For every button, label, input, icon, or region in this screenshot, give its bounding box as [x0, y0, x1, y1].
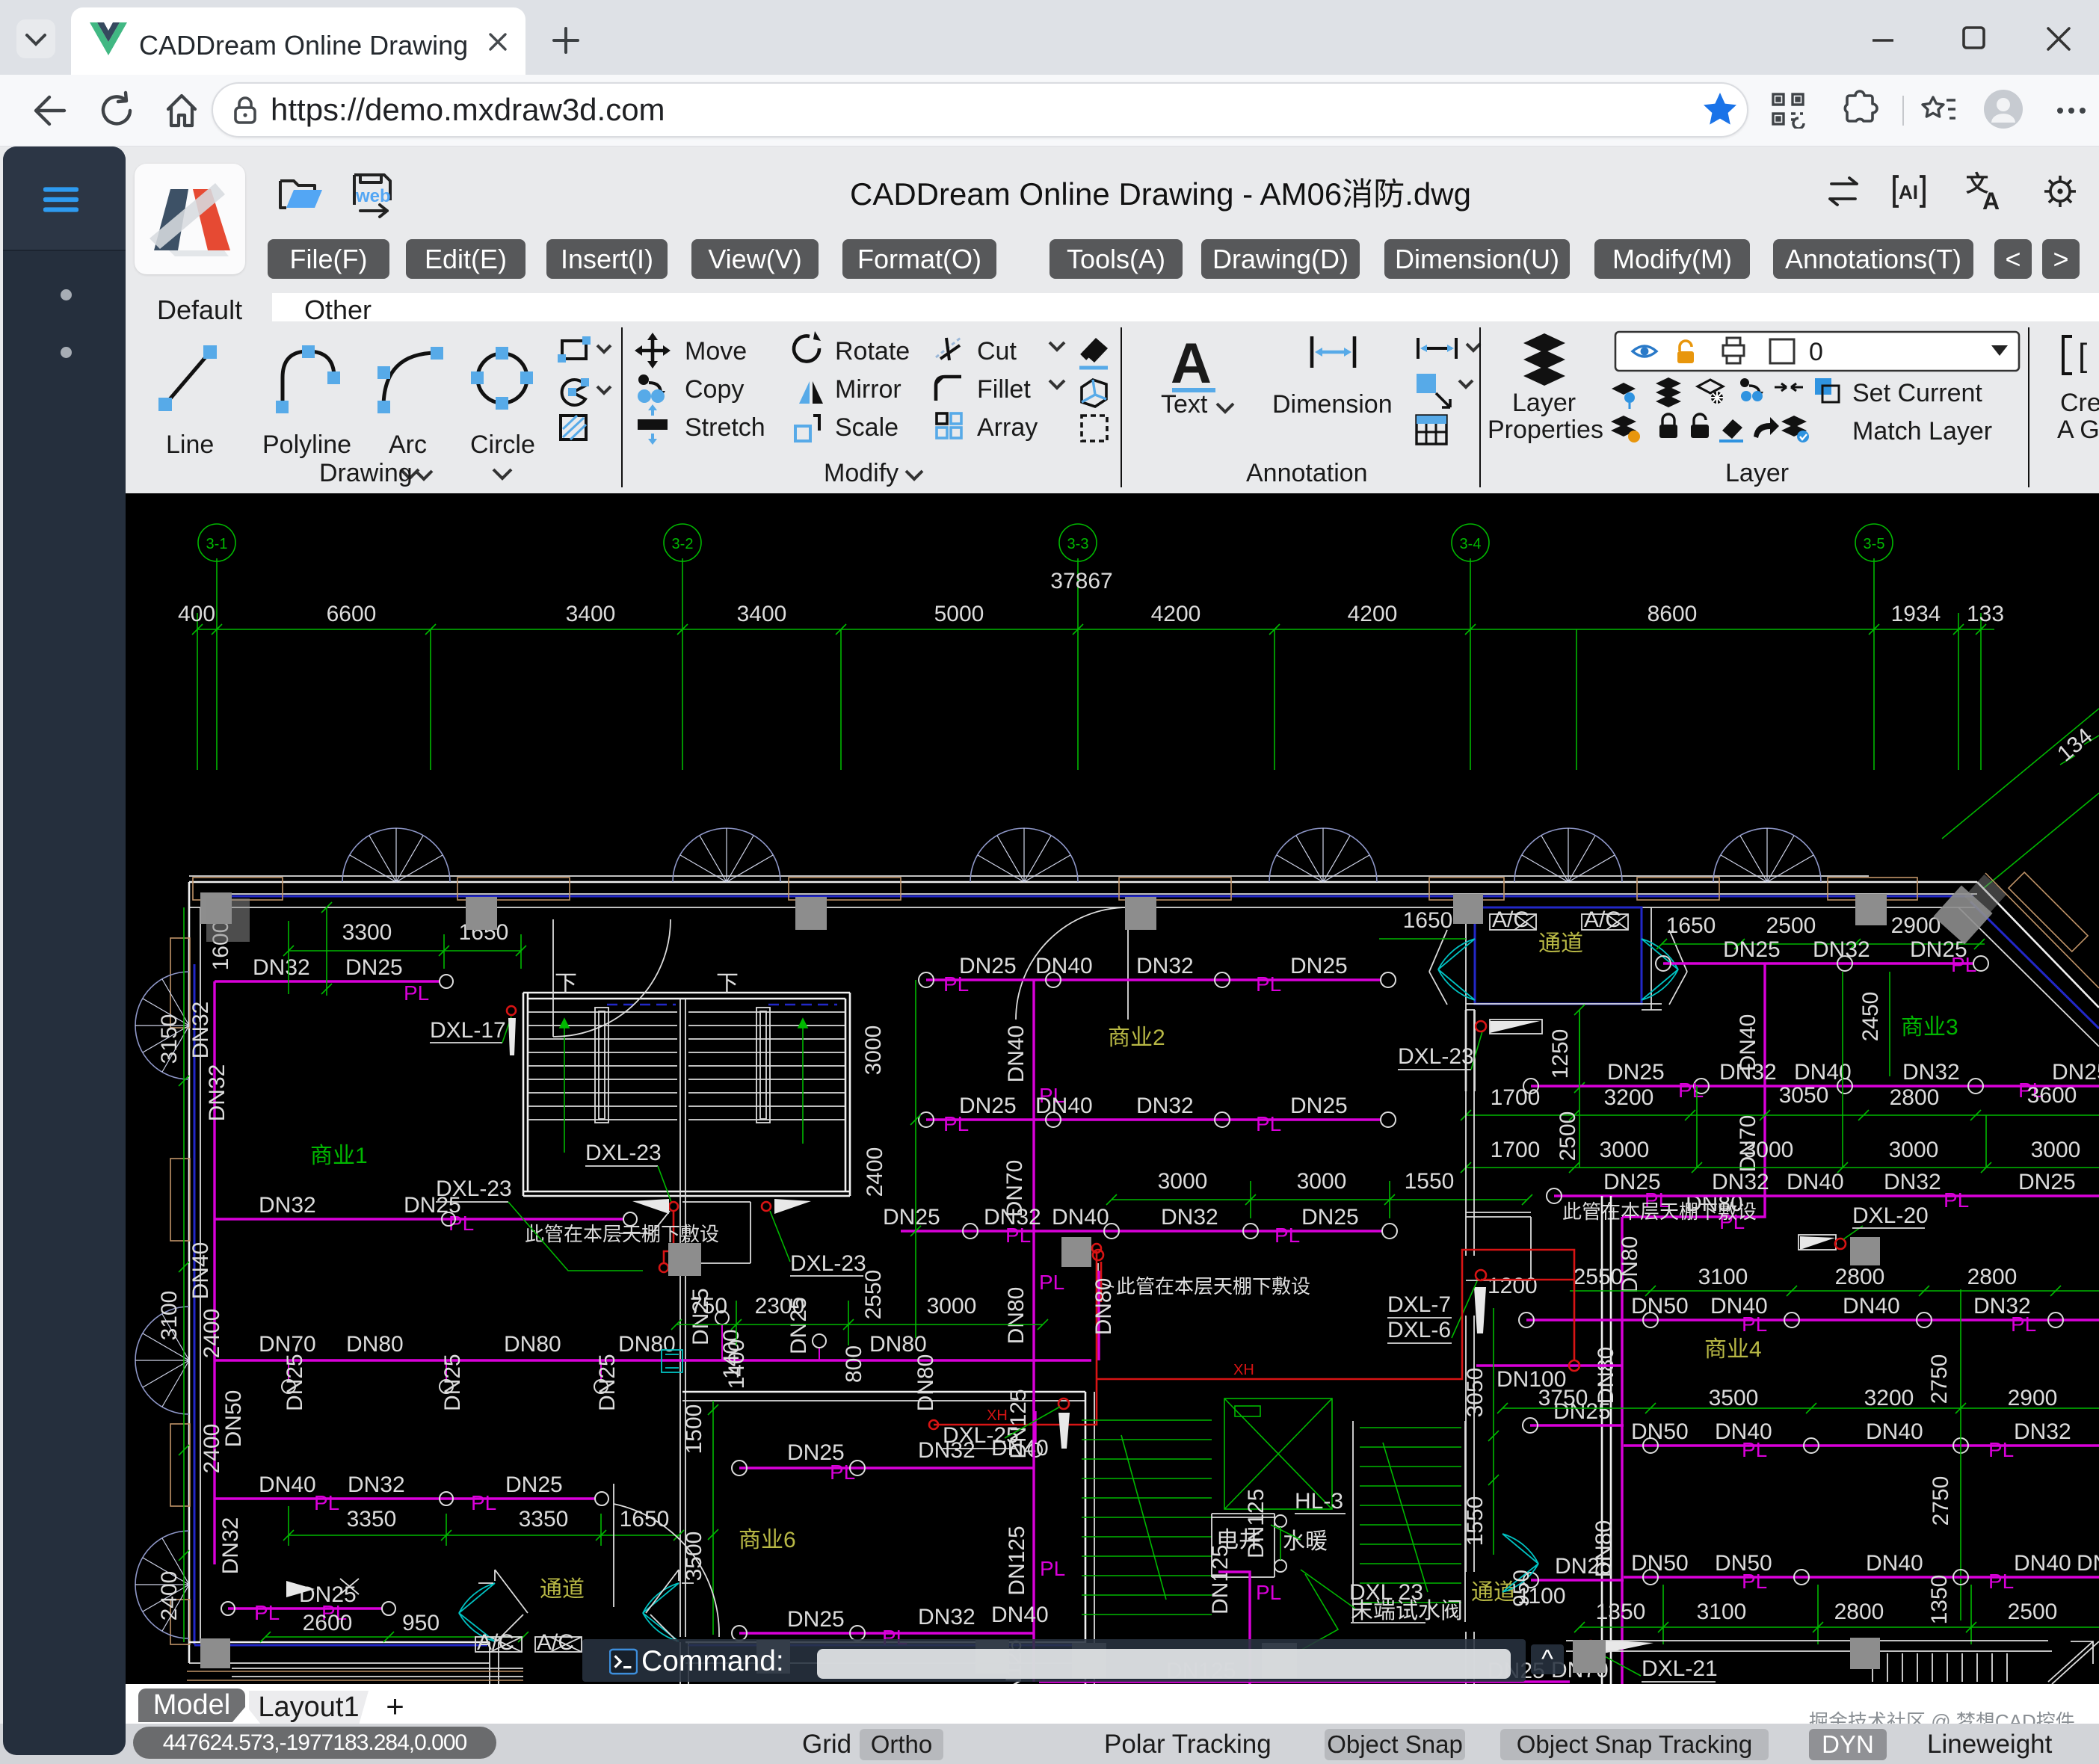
svg-text:DN125: DN125 [1005, 1526, 1029, 1595]
svg-text:Text: Text [1161, 390, 1208, 419]
svg-text:3-3: 3-3 [1067, 536, 1089, 552]
svg-text:3000: 3000 [1600, 1138, 1650, 1162]
svg-text:1100: 1100 [1517, 1584, 1566, 1609]
svg-text:DN32: DN32 [188, 1002, 213, 1059]
svg-text:DN25: DN25 [1290, 1094, 1348, 1118]
svg-text:2400: 2400 [863, 1147, 887, 1197]
svg-text:DN125: DN125 [1244, 1489, 1269, 1558]
svg-text:3350: 3350 [519, 1507, 569, 1532]
svg-text:DN80: DN80 [504, 1332, 561, 1357]
svg-text:此管在本层天棚下敷设: 此管在本层天棚下敷设 [1562, 1200, 1757, 1223]
svg-text:4200: 4200 [1151, 602, 1201, 626]
svg-text:3400: 3400 [566, 602, 616, 626]
svg-text:PL: PL [1040, 1557, 1065, 1580]
svg-text:3750: 3750 [1538, 1386, 1588, 1410]
svg-text:1500: 1500 [682, 1404, 706, 1455]
svg-text:web: web [355, 186, 391, 206]
svg-text:DN32: DN32 [218, 1517, 243, 1575]
svg-text:6600: 6600 [327, 602, 377, 626]
svg-text:A: A [1171, 332, 1212, 395]
svg-text:1250: 1250 [1548, 1029, 1573, 1079]
svg-text:DN32: DN32 [253, 955, 310, 980]
svg-text:DN25: DN25 [1607, 1060, 1665, 1085]
svg-text:DN25: DN25 [345, 955, 403, 980]
svg-text:Layer: Layer [1512, 389, 1576, 417]
svg-text:DN32: DN32 [918, 1605, 975, 1629]
svg-text:Annotation: Annotation [1246, 459, 1368, 487]
svg-text:DXL-23: DXL-23 [1398, 1044, 1474, 1069]
svg-text:1550: 1550 [1463, 1496, 1488, 1546]
svg-text:DN40: DN40 [188, 1242, 213, 1300]
svg-text:A/C: A/C [537, 1630, 574, 1655]
svg-text:3-4: 3-4 [1460, 536, 1482, 552]
svg-text:PL: PL [1951, 953, 1976, 976]
svg-text:DN25: DN25 [1555, 1554, 1612, 1579]
svg-text:Copy: Copy [685, 375, 744, 404]
svg-text:下: 下 [555, 972, 577, 996]
svg-text:此管在本层天棚下敷设: 此管在本层天棚下敷设 [525, 1223, 719, 1245]
svg-text:PL: PL [404, 981, 429, 1005]
svg-text:DN40: DN40 [1035, 1094, 1093, 1118]
svg-text:PL: PL [1742, 1570, 1767, 1593]
svg-text:PL: PL [1742, 1438, 1767, 1461]
svg-text:DN80: DN80 [346, 1332, 404, 1357]
svg-text:DN50: DN50 [1631, 1551, 1689, 1576]
svg-text:3100: 3100 [1697, 1600, 1747, 1624]
svg-text:800: 800 [842, 1345, 866, 1383]
svg-text:XH: XH [987, 1407, 1008, 1424]
svg-text:2750: 2750 [1927, 1354, 1952, 1404]
svg-text:DN80: DN80 [1091, 1278, 1116, 1336]
svg-text:DXL-23: DXL-23 [436, 1176, 512, 1201]
svg-text:1200: 1200 [1488, 1274, 1538, 1298]
svg-text:DN32: DN32 [259, 1193, 316, 1218]
svg-text:3050: 3050 [1779, 1083, 1829, 1108]
svg-text:PL: PL [1274, 1224, 1300, 1247]
svg-text:1934: 1934 [1891, 602, 1941, 626]
svg-text:DN32: DN32 [1902, 1060, 1960, 1085]
svg-text:通道: 通道 [1538, 931, 1583, 956]
svg-text:DXL-7: DXL-7 [1387, 1292, 1451, 1317]
svg-text:PL: PL [2011, 1313, 2036, 1336]
svg-text:DN25: DN25 [2018, 1170, 2076, 1194]
svg-text:此管在本层天棚下敷设: 此管在本层天棚下敷设 [1116, 1275, 1310, 1298]
svg-text:Move: Move [685, 337, 747, 366]
svg-text:DN40: DN40 [259, 1472, 316, 1497]
svg-text:DN32: DN32 [348, 1472, 405, 1497]
svg-text:1650: 1650 [1403, 908, 1453, 933]
svg-text:1350: 1350 [1596, 1600, 1646, 1624]
svg-text:400: 400 [178, 602, 215, 626]
svg-text:3000: 3000 [927, 1294, 977, 1319]
svg-text:DN25: DN25 [283, 1354, 307, 1411]
svg-text:Rotate: Rotate [835, 337, 910, 366]
svg-text:2750: 2750 [1929, 1476, 1953, 1526]
svg-text:A/C: A/C [1492, 907, 1529, 932]
svg-text:DN32: DN32 [1136, 954, 1194, 978]
svg-text:DN25: DN25 [787, 1607, 845, 1632]
svg-text:3400: 3400 [737, 602, 787, 626]
svg-text:3050: 3050 [1463, 1368, 1488, 1418]
svg-text:2900: 2900 [2008, 1386, 2058, 1410]
svg-text:1400: 1400 [724, 1339, 749, 1390]
svg-text:PL: PL [449, 1212, 474, 1235]
svg-text:1650: 1650 [1666, 913, 1716, 938]
svg-text:3300: 3300 [342, 920, 392, 945]
svg-text:DN32: DN32 [205, 1064, 229, 1122]
svg-text:3350: 3350 [347, 1507, 397, 1532]
svg-text:2500: 2500 [1556, 1111, 1580, 1162]
svg-text:商业3: 商业3 [1901, 1015, 1958, 1040]
svg-text:3600: 3600 [2027, 1083, 2077, 1108]
svg-text:5000: 5000 [934, 602, 984, 626]
svg-text:PL: PL [314, 1491, 339, 1514]
svg-text:DN40: DN40 [1866, 1551, 1923, 1576]
svg-text:A/C: A/C [477, 1630, 514, 1655]
svg-text:Arc: Arc [389, 431, 427, 459]
svg-text:Match Layer: Match Layer [1852, 417, 1992, 445]
svg-text:PL: PL [943, 1112, 969, 1135]
svg-text:水暖: 水暖 [1283, 1529, 1328, 1554]
svg-text:3000: 3000 [1297, 1169, 1347, 1194]
svg-text:Polyline: Polyline [262, 431, 351, 459]
svg-text:PL: PL [1256, 1581, 1281, 1604]
svg-text:2500: 2500 [2008, 1600, 2058, 1624]
svg-text:4200: 4200 [1348, 602, 1398, 626]
svg-text:DN: DN [2077, 1551, 2099, 1576]
svg-text:下: 下 [716, 972, 739, 996]
svg-text:950: 950 [402, 1611, 440, 1635]
svg-text:商业4: 商业4 [1704, 1337, 1762, 1362]
svg-text:2900: 2900 [1891, 913, 1941, 938]
svg-text:3500: 3500 [1709, 1386, 1759, 1410]
svg-text:750: 750 [690, 1294, 727, 1319]
svg-text:Stretch: Stretch [685, 413, 765, 442]
svg-text:PL: PL [254, 1601, 280, 1624]
svg-text:2400: 2400 [157, 1571, 182, 1621]
svg-text:XH: XH [1233, 1362, 1254, 1378]
svg-text:DN32: DN32 [1884, 1170, 1941, 1194]
svg-text:DN25: DN25 [1723, 937, 1781, 962]
svg-text:A: A [1982, 188, 2000, 211]
svg-text:2400: 2400 [200, 1309, 224, 1359]
svg-text:0: 0 [1809, 338, 1823, 366]
svg-text:PL: PL [943, 972, 969, 996]
svg-text:DN25: DN25 [1301, 1205, 1359, 1230]
svg-text:商业2: 商业2 [1108, 1026, 1165, 1050]
svg-text:DN40: DN40 [1004, 1026, 1029, 1083]
svg-text:PL: PL [830, 1461, 855, 1484]
svg-text:PL: PL [1039, 1271, 1064, 1294]
svg-text:PL: PL [1988, 1438, 2014, 1461]
svg-text:DN50: DN50 [1631, 1419, 1689, 1444]
svg-text:3000: 3000 [1158, 1169, 1208, 1194]
svg-text:DXL-23: DXL-23 [585, 1141, 662, 1165]
svg-text:Mirror: Mirror [835, 375, 901, 404]
svg-text:PL: PL [471, 1491, 496, 1514]
svg-text:DN32: DN32 [1136, 1094, 1194, 1118]
svg-text:DXL-21: DXL-21 [1642, 1656, 1718, 1681]
svg-text:DN32: DN32 [1719, 1060, 1777, 1085]
svg-text:2550: 2550 [1574, 1265, 1624, 1289]
svg-text:AI: AI [1899, 181, 1918, 203]
svg-text:通道: 通道 [540, 1577, 585, 1602]
svg-text:末端试水阀: 末端试水阀 [1351, 1599, 1463, 1623]
svg-text:DN25: DN25 [1290, 954, 1348, 978]
svg-text:1550: 1550 [1405, 1169, 1455, 1194]
svg-text:3100: 3100 [1698, 1265, 1748, 1289]
svg-text:3150: 3150 [157, 1014, 182, 1064]
svg-text:Fillet: Fillet [977, 375, 1031, 404]
svg-text:DN50: DN50 [221, 1390, 246, 1448]
svg-text:2600: 2600 [303, 1611, 353, 1635]
svg-text:1650: 1650 [620, 1507, 670, 1532]
svg-text:Circle: Circle [470, 431, 535, 459]
svg-text:3200: 3200 [1604, 1085, 1654, 1110]
svg-text:3000: 3000 [861, 1026, 886, 1076]
svg-text:133: 133 [1967, 602, 2004, 626]
svg-text:Set Current: Set Current [1852, 379, 1982, 407]
svg-text:3-1: 3-1 [206, 536, 228, 552]
svg-text:DN80: DN80 [1004, 1287, 1029, 1345]
svg-text:HL-3: HL-3 [1295, 1489, 1343, 1514]
svg-text:Layer: Layer [1725, 459, 1789, 487]
svg-text:3-2: 3-2 [672, 536, 694, 552]
svg-text:PL: PL [1678, 1079, 1704, 1102]
svg-text:2800: 2800 [1835, 1265, 1885, 1289]
svg-text:37867: 37867 [1050, 569, 1112, 593]
svg-text:Drawing: Drawing [319, 459, 413, 487]
svg-text:2450: 2450 [1858, 992, 1883, 1042]
svg-text:DN40: DN40 [1843, 1294, 1900, 1319]
svg-text:DN70: DN70 [259, 1332, 316, 1357]
svg-text:Modify: Modify [824, 459, 899, 487]
svg-text:Scale: Scale [835, 413, 899, 442]
svg-text:DN32: DN32 [1813, 937, 1870, 962]
svg-text:商业6: 商业6 [739, 1528, 796, 1552]
svg-text:PL: PL [1005, 1224, 1031, 1247]
svg-text:2800: 2800 [1967, 1265, 2018, 1289]
svg-text:134: 134 [2053, 724, 2098, 766]
svg-text:2550: 2550 [861, 1270, 886, 1320]
svg-text:DN80: DN80 [869, 1332, 927, 1357]
svg-text:DN40: DN40 [2014, 1551, 2071, 1576]
svg-text:DXL-6: DXL-6 [1387, 1318, 1451, 1342]
svg-text:3-5: 3-5 [1864, 536, 1885, 552]
svg-text:DN40: DN40 [1035, 954, 1093, 978]
svg-text:DN25: DN25 [883, 1205, 940, 1230]
svg-text:PL: PL [1256, 1112, 1281, 1135]
svg-text:DXL-23: DXL-23 [790, 1251, 866, 1276]
svg-text:2800: 2800 [1834, 1600, 1884, 1624]
svg-text:2400: 2400 [200, 1424, 224, 1474]
svg-text:PL: PL [1944, 1188, 1969, 1212]
svg-text:DN32: DN32 [1161, 1205, 1218, 1230]
svg-text:3100: 3100 [157, 1291, 182, 1341]
svg-text:DN40: DN40 [991, 1603, 1049, 1627]
svg-text:商业1: 商业1 [310, 1144, 368, 1168]
svg-text:PL: PL [1256, 972, 1281, 996]
svg-text:DN25: DN25 [2052, 1060, 2099, 1085]
svg-text:1700: 1700 [1491, 1138, 1541, 1162]
svg-text:1700: 1700 [1491, 1085, 1541, 1110]
svg-text:DN40: DN40 [1787, 1170, 1844, 1194]
svg-text:3000: 3000 [1889, 1138, 1939, 1162]
svg-text:A/C: A/C [1584, 907, 1621, 932]
svg-text:1350: 1350 [1927, 1575, 1952, 1625]
svg-text:PL: PL [1742, 1313, 1767, 1336]
svg-text:3000: 3000 [1744, 1138, 1794, 1162]
svg-text:PL: PL [1988, 1570, 2014, 1593]
svg-text:DN32: DN32 [1712, 1170, 1769, 1194]
svg-text:DXL-20: DXL-20 [1852, 1203, 1929, 1228]
svg-text:2800: 2800 [1890, 1085, 1940, 1110]
svg-text:3000: 3000 [2031, 1138, 2081, 1162]
svg-text:DXL-17: DXL-17 [430, 1018, 506, 1043]
svg-text:Dimension: Dimension [1272, 390, 1393, 419]
svg-text:[: [ [2078, 337, 2087, 374]
svg-text:DN32: DN32 [2014, 1419, 2071, 1444]
svg-text:DN50: DN50 [1631, 1294, 1689, 1319]
svg-text:Properties: Properties [1488, 416, 1603, 444]
svg-text:Cre: Cre [2060, 389, 2099, 417]
svg-text:DXL-25: DXL-25 [943, 1423, 1019, 1448]
svg-text:Cut: Cut [977, 337, 1017, 366]
svg-text:DN125: DN125 [1208, 1545, 1233, 1615]
svg-text:Line: Line [166, 431, 214, 459]
svg-text:DN25: DN25 [440, 1354, 465, 1411]
svg-text:2500: 2500 [1766, 913, 1816, 938]
svg-text:DN80: DN80 [618, 1332, 676, 1357]
svg-text:A G: A G [2057, 416, 2099, 444]
svg-text:DN40: DN40 [1052, 1205, 1109, 1230]
svg-text:3200: 3200 [1864, 1386, 1914, 1410]
svg-text:DN40: DN40 [1866, 1419, 1923, 1444]
svg-text:Array: Array [977, 413, 1038, 442]
svg-text:2300: 2300 [755, 1294, 805, 1319]
svg-text:DN25: DN25 [595, 1354, 620, 1411]
svg-text:8600: 8600 [1648, 602, 1698, 626]
svg-text:DN80: DN80 [913, 1354, 938, 1412]
svg-text:DN25: DN25 [505, 1472, 563, 1497]
svg-text:DN80: DN80 [1594, 1347, 1618, 1404]
